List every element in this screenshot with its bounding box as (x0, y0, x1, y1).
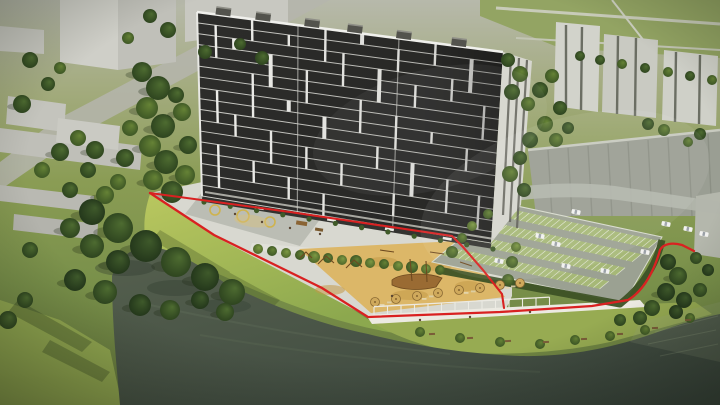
aerial-render (0, 0, 720, 405)
render-stage (0, 0, 720, 405)
vignette (0, 0, 720, 405)
